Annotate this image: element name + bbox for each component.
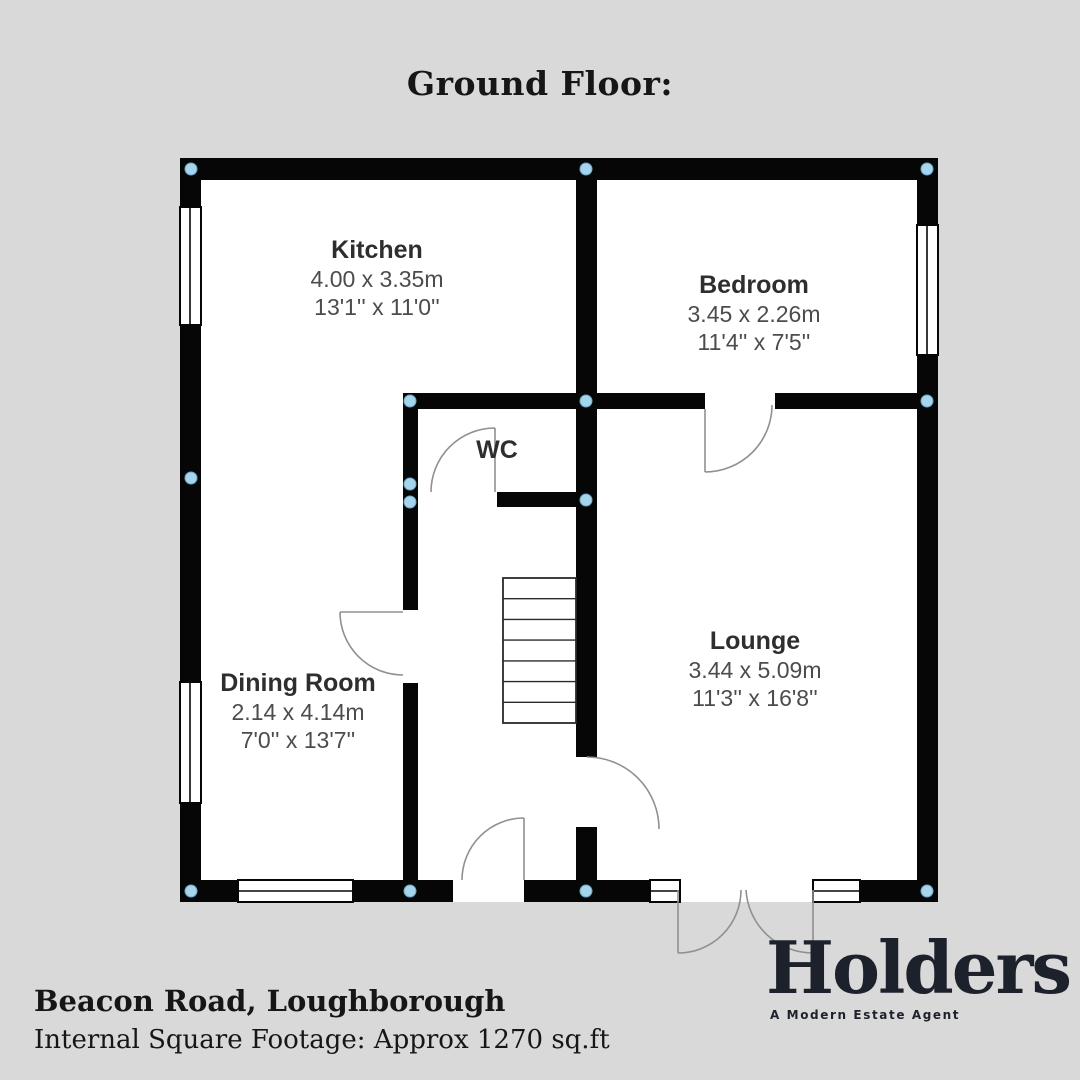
room-label-wc: WC xyxy=(476,436,518,465)
window-bottom-dining xyxy=(238,880,353,902)
window-left-lower xyxy=(180,682,201,803)
window-right-bedroom xyxy=(917,225,938,355)
room-dim-metric: 3.45 x 2.26m xyxy=(688,300,821,328)
room-dim-metric: 3.44 x 5.09m xyxy=(689,656,822,684)
room-name: Bedroom xyxy=(688,271,821,300)
window-bottom-lounge xyxy=(813,880,860,902)
room-label-kitchen: Kitchen 4.00 x 3.35m 13'1'' x 11'0'' xyxy=(311,236,444,321)
room-dim-imperial: 11'3'' x 16'8'' xyxy=(689,684,822,712)
room-dim-metric: 2.14 x 4.14m xyxy=(220,698,376,726)
property-address: Beacon Road, Loughborough xyxy=(34,984,506,1018)
window-left-upper xyxy=(180,207,201,325)
room-label-dining: Dining Room 2.14 x 4.14m 7'0'' x 13'7'' xyxy=(220,669,376,754)
entrance-opening xyxy=(453,880,524,902)
window-bottom-hall xyxy=(650,880,680,902)
square-footage: Internal Square Footage: Approx 1270 sq.… xyxy=(34,1025,610,1055)
room-dim-imperial: 13'1'' x 11'0'' xyxy=(311,293,444,321)
room-dim-imperial: 11'4'' x 7'5'' xyxy=(688,328,821,356)
room-dim-metric: 4.00 x 3.35m xyxy=(311,265,444,293)
room-label-bedroom: Bedroom 3.45 x 2.26m 11'4'' x 7'5'' xyxy=(688,271,821,356)
staircase xyxy=(503,578,576,723)
floorplan-page: Ground Floor: xyxy=(0,0,1080,1080)
holders-logo: Holders A Modern Estate Agent xyxy=(766,930,1070,1022)
floorplan-drawing xyxy=(0,0,1080,1080)
room-name: Kitchen xyxy=(311,236,444,265)
room-name: WC xyxy=(476,436,518,465)
room-name: Lounge xyxy=(689,627,822,656)
room-label-lounge: Lounge 3.44 x 5.09m 11'3'' x 16'8'' xyxy=(689,627,822,712)
room-dim-imperial: 7'0'' x 13'7'' xyxy=(220,726,376,754)
logo-wordmark: Holders xyxy=(766,930,1070,1006)
room-name: Dining Room xyxy=(220,669,376,698)
